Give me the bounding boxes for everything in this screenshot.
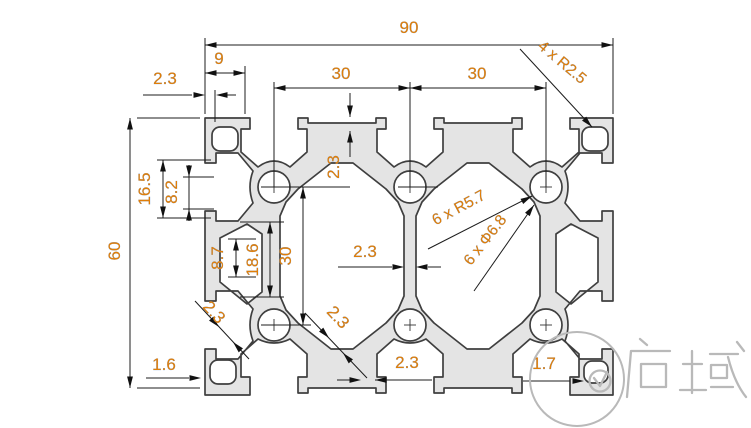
dimension-label-bottom-wall-left: 1.6: [152, 355, 176, 374]
dimension-arrow: [160, 160, 166, 172]
dimension-bottom-wall-left: 1.6: [146, 355, 201, 381]
dimension-wall-thickness-top-left: 2.3: [143, 69, 236, 122]
dimension-corner-radius: 4 x R2.5: [520, 37, 594, 128]
dimension-overall-width: 90: [205, 18, 613, 114]
dimension-corner-tab-width: 9: [205, 49, 245, 114]
dimension-arrow: [274, 85, 286, 91]
dimension-arrow: [205, 42, 217, 48]
dimension-bottom-wall-right: 1.7: [523, 354, 584, 384]
dimension-core-hole-diameter: 6 x Φ6.8: [461, 203, 537, 291]
technical-drawing-canvas: 9092.330304 x R2.56016.58.22.38.718.6302…: [0, 0, 751, 428]
dimension-arrow: [194, 92, 206, 98]
dimension-label-top-flange-thickness: 2.3: [324, 155, 343, 179]
dimension-arrow: [127, 118, 133, 130]
dimension-arrow: [216, 92, 228, 98]
dimension-label-side-cavity-width: 18.6: [243, 243, 262, 276]
dimension-arrow: [399, 85, 411, 91]
dimension-diagonal-wall-lower-left: 2.3: [195, 297, 249, 359]
dimension-arrow: [602, 42, 614, 48]
dimension-arrow: [186, 166, 192, 178]
dimension-label-overall-height: 60: [105, 242, 124, 261]
dimension-overall-height: 60: [105, 118, 200, 388]
watermark: 启域: [530, 332, 746, 426]
dimension-center-web-thickness: 2.3: [338, 242, 441, 270]
dimension-arrow: [205, 70, 217, 76]
dimension-label-bottom-web-thickness: 2.3: [395, 353, 419, 372]
dimension-arrow: [234, 70, 246, 76]
dimension-arrow: [190, 375, 202, 381]
dimension-arrow: [186, 209, 192, 221]
dimension-label-hole-pitch-vertical: 30: [276, 247, 295, 266]
profile-drawing: 9092.330304 x R2.56016.58.22.38.718.6302…: [0, 0, 751, 428]
dimension-label-slot-pitch-right: 30: [468, 64, 487, 83]
dimension-arrow: [233, 239, 239, 251]
dimension-label-core-hole-diameter: 6 x Φ6.8: [461, 212, 511, 269]
dimension-arrow: [410, 85, 422, 91]
dimension-arrow: [535, 85, 547, 91]
dimension-label-slot-pitch-left: 30: [332, 64, 351, 83]
dimension-label-side-groove-width: 8.7: [208, 246, 227, 270]
dimension-arrow: [233, 266, 239, 278]
dimension-label-corner-tab-width: 9: [214, 49, 223, 68]
dimension-arrow: [127, 377, 133, 389]
dimension-label-overall-width: 90: [400, 18, 419, 37]
dimension-arrow: [160, 207, 166, 219]
dimension-label-center-web-thickness: 2.3: [353, 242, 377, 261]
dimension-label-side-slot-outer-width: 16.5: [135, 172, 154, 205]
dimension-label-wall-thickness-top-left: 2.3: [153, 69, 177, 88]
dimension-arrow: [416, 264, 428, 270]
dimension-label-side-slot-mouth-width: 8.2: [162, 180, 181, 204]
dimension-arrow: [393, 264, 405, 270]
dimension-label-diagonal-wall-lower-middle: 2.3: [323, 302, 353, 332]
dimension-label-diagonal-wall-lower-left: 2.3: [199, 297, 229, 327]
dimension-arrow: [347, 106, 353, 118]
dimension-arrow: [300, 314, 306, 326]
dimension-arrow: [300, 187, 306, 199]
